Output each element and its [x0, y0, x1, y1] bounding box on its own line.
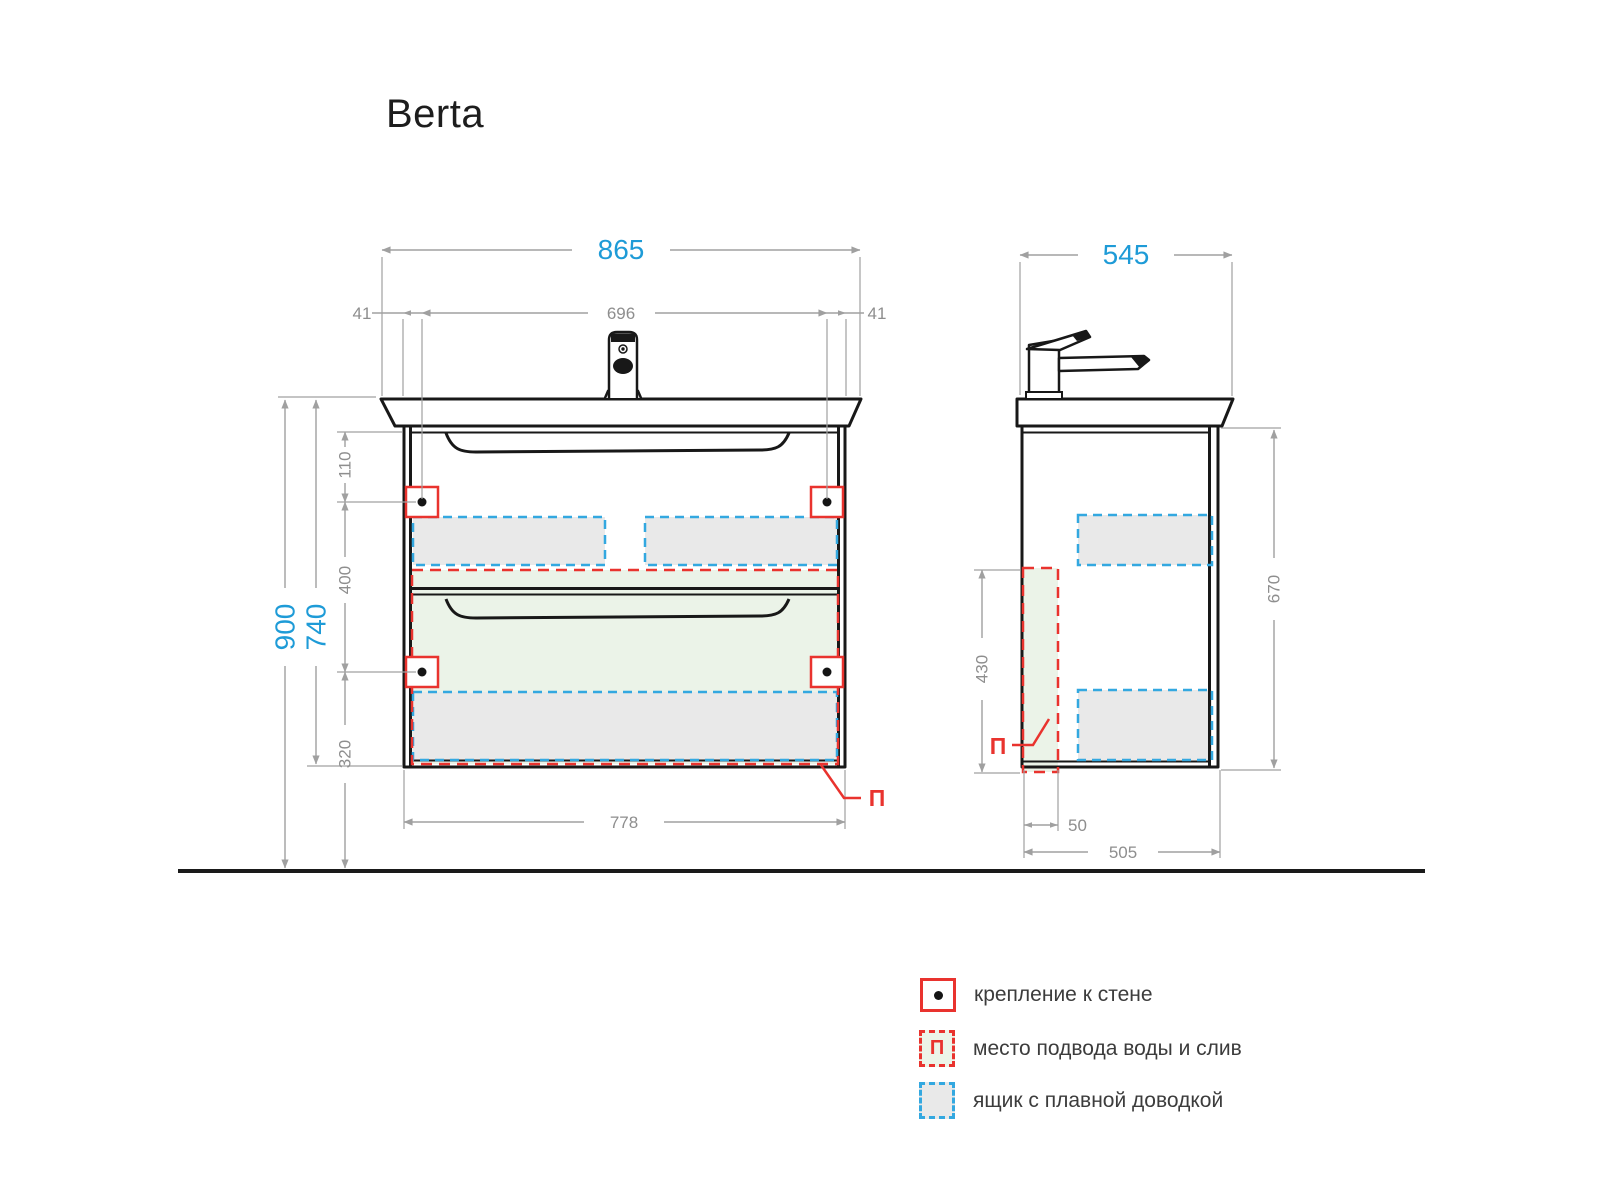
faucet-front [605, 332, 641, 398]
dim-670: 670 [1265, 575, 1284, 603]
mount-dot-icon [934, 991, 943, 1000]
dim-430: 430 [973, 655, 992, 683]
sink-side [1017, 399, 1233, 426]
dim-545: 545 [1103, 239, 1150, 270]
supply-symbol: П [930, 1037, 944, 1060]
supply-markers: П П [821, 719, 1049, 811]
dim-110: 110 [336, 451, 355, 478]
supply-leader-front [821, 765, 861, 798]
water-supply-zone-side [1023, 568, 1058, 772]
sink-front [381, 399, 861, 426]
dim-696: 696 [607, 304, 635, 323]
dim-50: 50 [1068, 816, 1087, 835]
drawing-canvas: 865 696 41 41 900 740 110 400 320 778 54… [0, 0, 1600, 1200]
floor-line [178, 869, 1425, 873]
legend-label: ящик с плавной доводкой [973, 1089, 1223, 1113]
legend-label: крепление к стене [974, 983, 1153, 1007]
drawer-zone-side-bottom [1078, 690, 1212, 760]
technical-drawing-page: Berta [0, 0, 1600, 1200]
drawer-zone-top-left [413, 517, 605, 565]
drawer-handle-recess-top [446, 433, 789, 452]
legend-item-soft-close-drawer: ящик с плавной доводкой [919, 1082, 1223, 1119]
dim-740: 740 [301, 604, 332, 651]
dim-400: 400 [336, 566, 355, 594]
supply-marker-side: П [990, 733, 1007, 759]
dim-41-left: 41 [353, 304, 372, 323]
dim-320: 320 [336, 740, 355, 768]
legend-label: место подвода воды и слив [973, 1037, 1242, 1061]
dim-505: 505 [1109, 843, 1137, 862]
water-supply-icon: П [919, 1030, 955, 1067]
dim-41-right: 41 [868, 304, 887, 323]
drawer-zone-top-right [645, 517, 837, 565]
soft-close-drawer-icon [919, 1082, 955, 1119]
supply-marker-front: П [869, 785, 886, 811]
drawer-zone-bottom [413, 692, 837, 760]
zone-fills [412, 515, 1212, 772]
dim-865: 865 [598, 234, 645, 265]
dim-778: 778 [610, 813, 638, 832]
legend-item-water-supply: П место подвода воды и слив [919, 1030, 1242, 1067]
dim-900: 900 [270, 604, 301, 651]
legend-item-wall-mount: крепление к стене [920, 978, 1153, 1012]
wall-mount-icon [920, 978, 956, 1012]
faucet-side [1026, 331, 1149, 398]
page-title: Berta [386, 92, 484, 137]
drawer-zone-side-top [1078, 515, 1212, 565]
